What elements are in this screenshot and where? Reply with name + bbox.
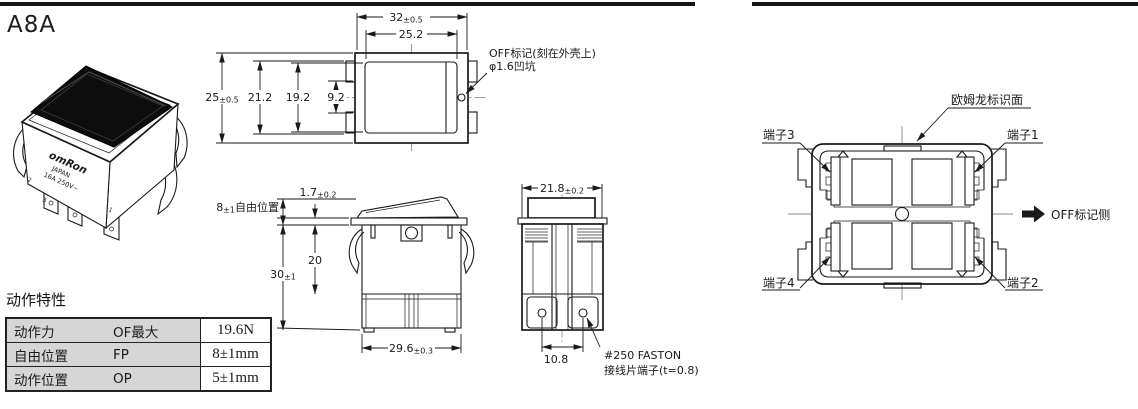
svg-text:端子3: 端子3 bbox=[763, 128, 795, 142]
row-value: 5±1mm bbox=[201, 367, 270, 390]
product-illustration: omRon JAPAN 16A 250V~ 2 3 1 bbox=[10, 55, 190, 270]
label-off-mark-side: OFF标记侧 bbox=[1022, 206, 1110, 223]
svg-text:21.2: 21.2 bbox=[248, 91, 273, 104]
dim-1-7: 1.7±0.2 bbox=[300, 186, 337, 218]
top-view-drawing: 32±0.5 25.2 25±0.5 2 bbox=[195, 8, 700, 160]
end-view-body bbox=[518, 198, 607, 330]
dim-20: 20 bbox=[306, 225, 325, 294]
svg-text:OFF标记(刻在外壳上): OFF标记(刻在外壳上) bbox=[489, 46, 596, 60]
column-rule-left bbox=[0, 2, 695, 6]
svg-text:接线片端子(t=0.8): 接线片端子(t=0.8) bbox=[604, 363, 699, 377]
row-code: FP bbox=[113, 347, 129, 363]
row-label: 自由位置 bbox=[14, 345, 113, 365]
row-code: OP bbox=[113, 371, 132, 387]
svg-text:19.2: 19.2 bbox=[286, 91, 311, 104]
svg-text:端子2: 端子2 bbox=[1007, 276, 1039, 290]
off-mark-dimple bbox=[458, 94, 465, 101]
table-row: 动作力 OF最大 19.6N bbox=[7, 319, 270, 342]
dim-19-2: 19.2 bbox=[284, 63, 312, 132]
side-view-body bbox=[349, 197, 474, 332]
dim-29-6: 29.6±0.3 bbox=[362, 334, 461, 356]
dim-25: 25±0.5 bbox=[201, 53, 243, 143]
svg-text:10.8: 10.8 bbox=[544, 353, 569, 366]
svg-text:欧姆龙标识面: 欧姆龙标识面 bbox=[951, 93, 1023, 107]
table-title: 动作特性 bbox=[6, 289, 272, 310]
row-label: 动作位置 bbox=[14, 369, 113, 389]
table-row: 动作位置 OP 5±1mm bbox=[7, 366, 270, 390]
terminal-view-drawing: 欧姆龙标识面 端子3 端子1 端子4 端子2 OFF标记侧 bbox=[745, 85, 1138, 310]
dim-9-2: 9.2 bbox=[325, 81, 347, 113]
spec-table: 动作力 OF最大 19.6N 自由位置 FP 8±1mm 动作位置 OP 5±1… bbox=[5, 317, 272, 392]
svg-text:1.7±0.2: 1.7±0.2 bbox=[300, 186, 337, 200]
svg-text:端子1: 端子1 bbox=[1007, 128, 1039, 142]
top-view-body bbox=[346, 53, 477, 143]
column-rule-right bbox=[752, 2, 1138, 6]
row-label: 动作力 bbox=[14, 321, 113, 341]
row-value: 19.6N bbox=[201, 319, 270, 342]
dim-21-2: 21.2 bbox=[246, 61, 274, 134]
operating-characteristics: 动作特性 动作力 OF最大 19.6N 自由位置 FP 8±1mm 动作位置 bbox=[5, 289, 272, 392]
svg-text:20: 20 bbox=[308, 254, 322, 267]
end-view-drawing: 21.8±0.2 10.8 #250 FASTON 接线片端子(t=0.8) bbox=[490, 162, 720, 409]
svg-text:端子4: 端子4 bbox=[763, 276, 795, 290]
svg-text:#250 FASTON: #250 FASTON bbox=[604, 349, 681, 362]
row-code: OF最大 bbox=[113, 321, 158, 341]
off-side-arrow-icon bbox=[1022, 206, 1045, 223]
row-value: 8±1mm bbox=[201, 343, 270, 366]
dim-free-position: 8±1自由位置 bbox=[216, 199, 283, 225]
svg-text:φ1.6凹坑: φ1.6凹坑 bbox=[489, 59, 536, 73]
off-mark-callout: OFF标记(刻在外壳上) φ1.6凹坑 bbox=[466, 46, 596, 94]
svg-text:OFF标记侧: OFF标记侧 bbox=[1051, 208, 1110, 222]
svg-text:9.2: 9.2 bbox=[327, 91, 345, 104]
table-row: 自由位置 FP 8±1mm bbox=[7, 342, 270, 366]
datasheet-page: A8A omRon JAPAN 16A 250V~ bbox=[0, 0, 1138, 409]
svg-text:8±1自由位置: 8±1自由位置 bbox=[216, 200, 279, 215]
page-title: A8A bbox=[7, 12, 56, 38]
svg-text:25.2: 25.2 bbox=[399, 28, 424, 41]
